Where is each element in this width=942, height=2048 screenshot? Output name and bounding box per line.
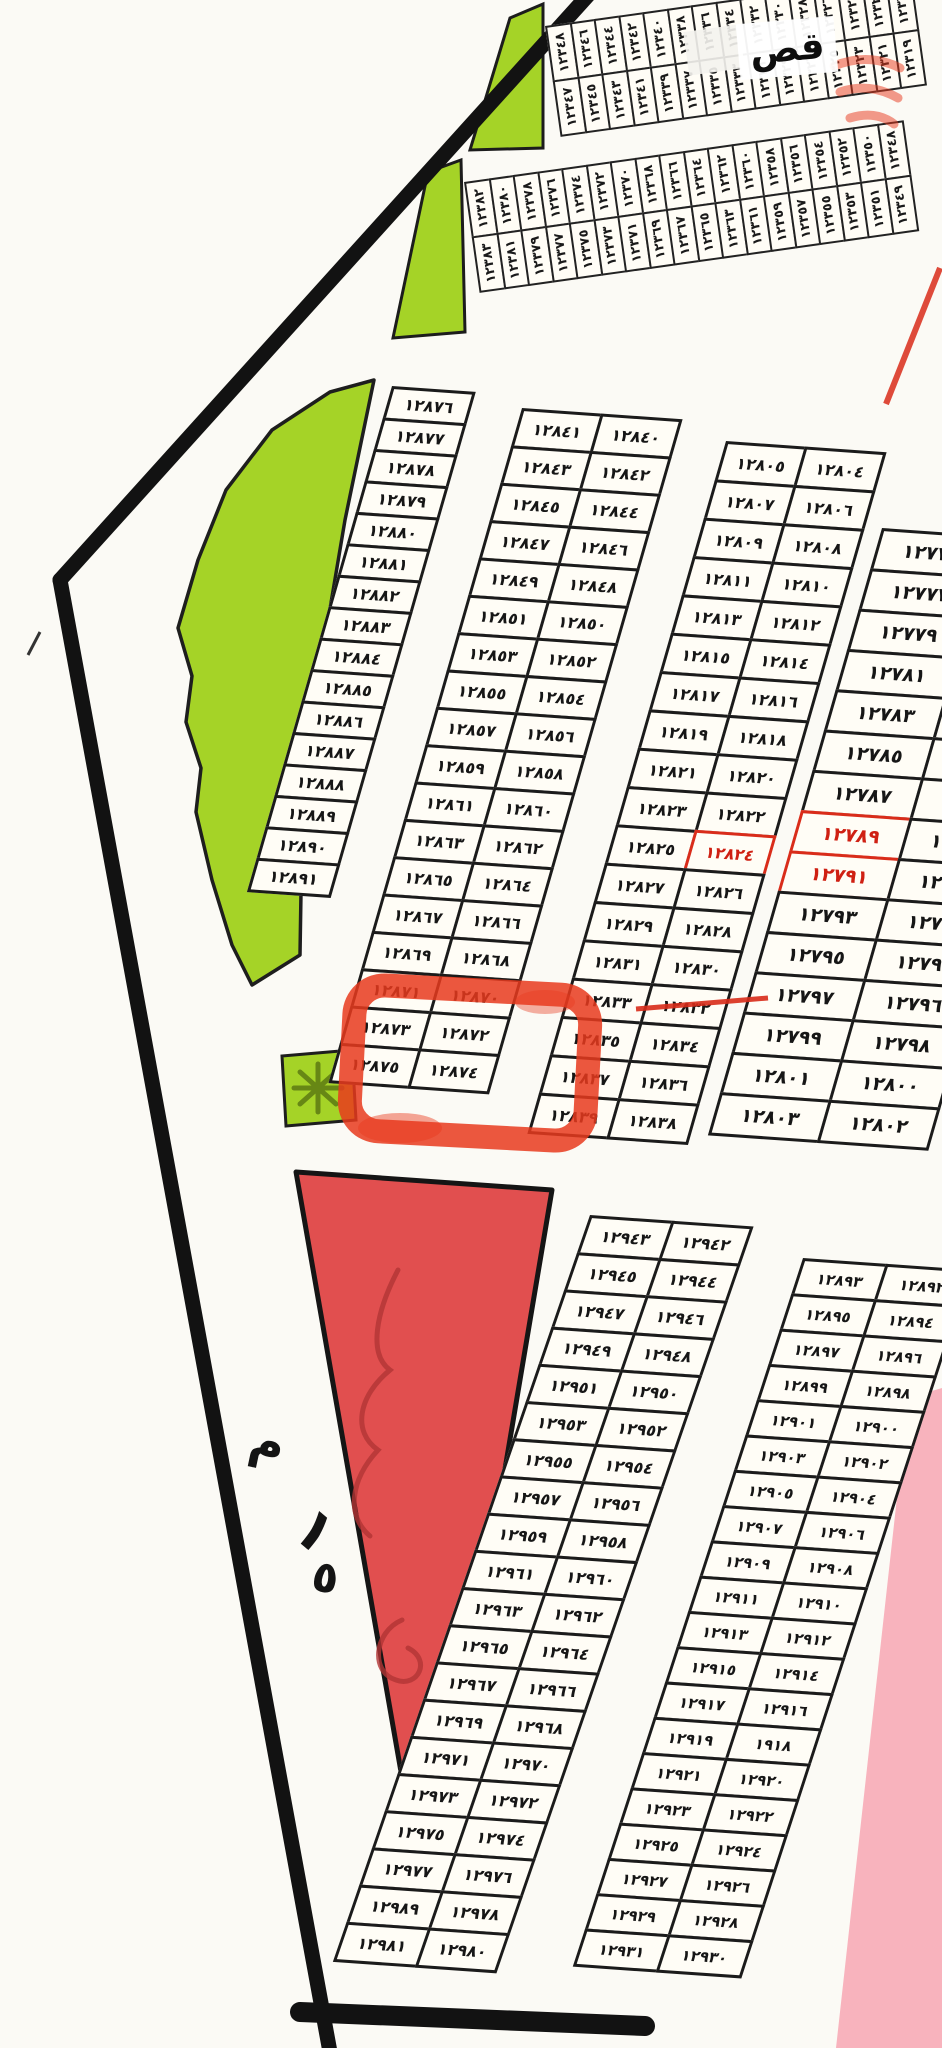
park-triangle-top-2 — [393, 160, 465, 338]
plot-cell: ١٢٩٨٠ — [415, 1927, 511, 1973]
plot-cell: ١٢٨٣٨ — [606, 1098, 700, 1145]
plot-cell: ١٢٨٠٣ — [708, 1092, 832, 1143]
boundary-line-bottom — [300, 2012, 645, 2026]
marker-smear — [358, 1113, 442, 1143]
plot-cell: ١٢٨٧٥ — [328, 1043, 421, 1089]
plot-cell: ١٢٩٣٠ — [656, 1934, 754, 1978]
park-triangle-top-1 — [470, 4, 543, 150]
plot-cell: ١٢٩٣١ — [573, 1928, 671, 1972]
district-label: قص — [736, 16, 839, 80]
boundary-tick — [28, 632, 40, 655]
red-line-topright — [886, 268, 940, 404]
plot-strip-top-2: ١٢٣٨٢١٢٣٨٠١٢٣٧٨١٢٣٧٦١٢٣٧٤١٢٣٧٢١٢٣٧٠١٢٣٦٨… — [464, 120, 919, 292]
map-canvas: ١٢٣٤٨١٢٣٤٦١٢٣٤٤١٢٣٤٢١٢٣٤٠١٢٣٣٨١٢٣٣٦١٢٣٣٤… — [0, 0, 942, 2048]
plot-cell: ١٢٨٠٢ — [817, 1100, 941, 1151]
plot-cell: ١٢٨٩١ — [247, 858, 341, 898]
red-triangle-scribble — [354, 1270, 420, 1681]
handwritten-meter-letter: م — [245, 1411, 291, 1473]
plot-cell: ١٢٨٧٤ — [407, 1048, 500, 1094]
